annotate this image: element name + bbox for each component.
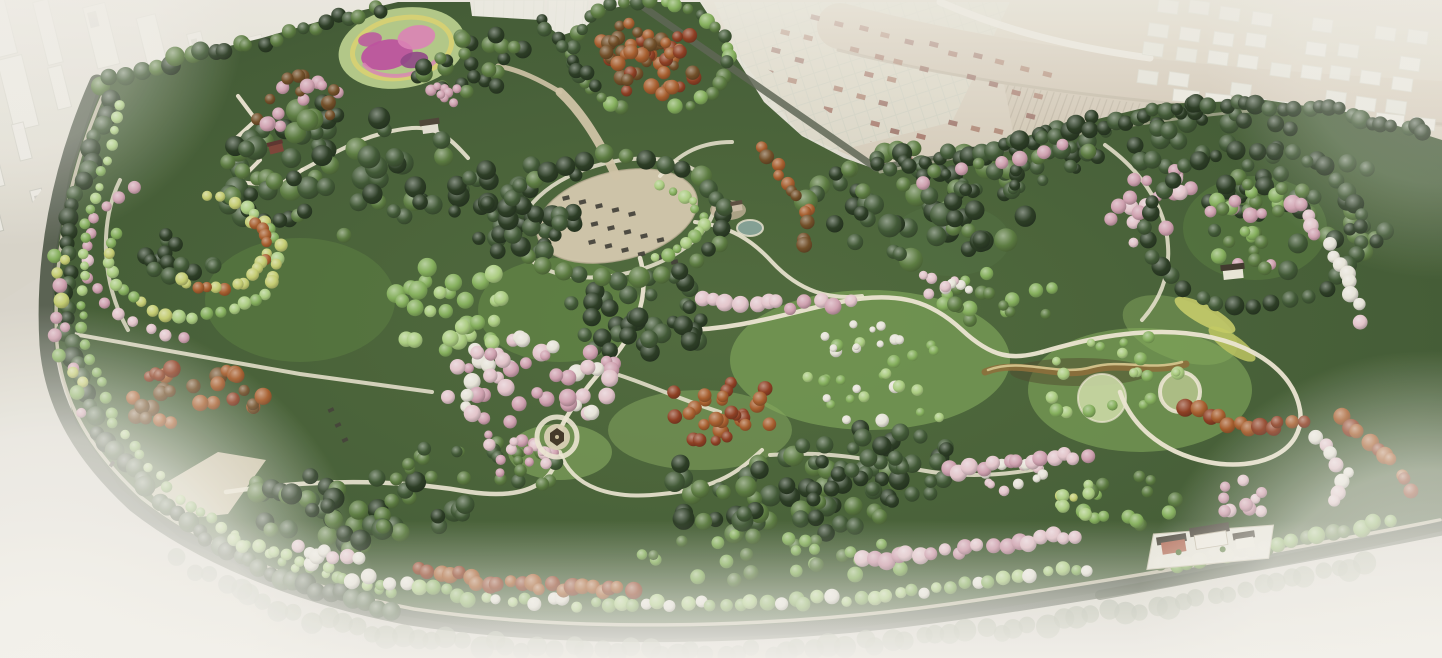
scene-svg	[0, 0, 1442, 658]
park-masterplan-rendering: Aerial bird's-eye rendering of a landsca…	[0, 0, 1442, 658]
fog-vignette	[0, 0, 1442, 658]
